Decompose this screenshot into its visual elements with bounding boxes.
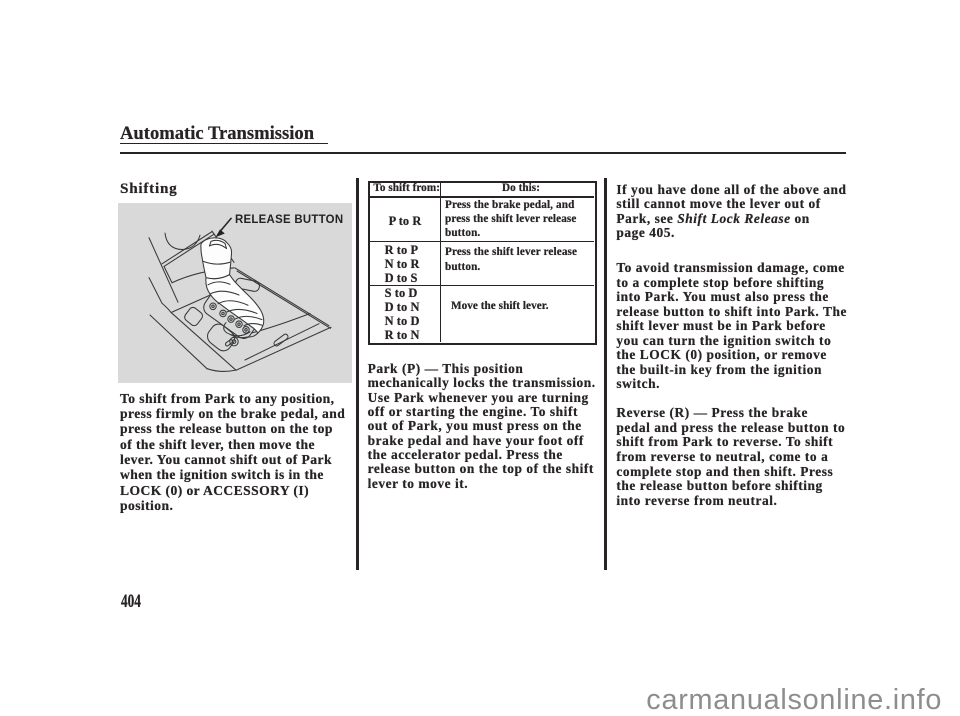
svg-text:RELEASE BUTTON: RELEASE BUTTON <box>235 213 343 225</box>
